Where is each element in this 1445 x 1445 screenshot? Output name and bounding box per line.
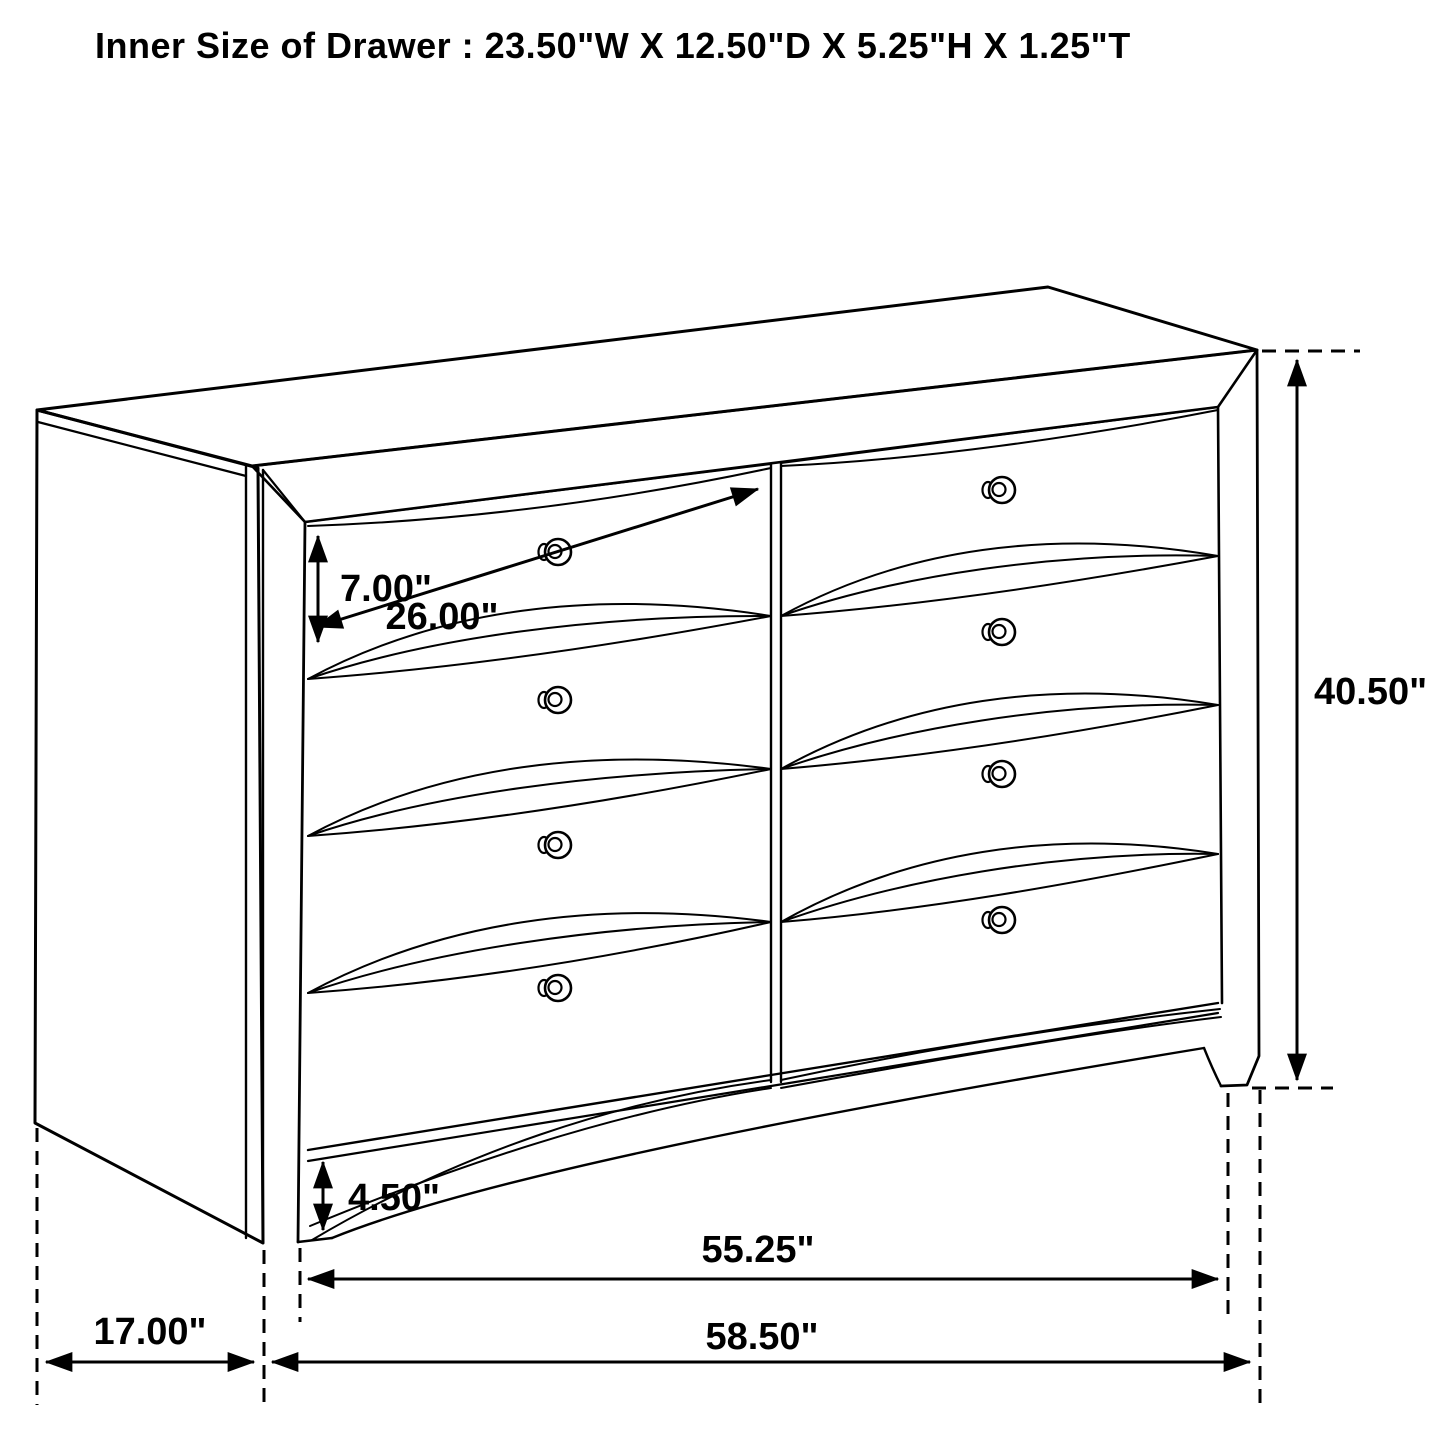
dimension-side-depth: 17.00" xyxy=(46,1311,254,1362)
drawer-knob xyxy=(539,687,572,713)
front-width-between-feet-label: 55.25" xyxy=(701,1229,814,1271)
drawer-knob xyxy=(983,761,1016,787)
dresser-top-face xyxy=(37,287,1257,522)
base-height-label: 4.50" xyxy=(348,1177,440,1219)
drawer-knob xyxy=(983,907,1016,933)
drawer-knobs xyxy=(539,477,1016,1001)
left-drawer-column xyxy=(305,464,771,993)
side-depth-label: 17.00" xyxy=(93,1311,206,1353)
dimension-overall-height: 40.50" xyxy=(1297,360,1427,1080)
overall-height-label: 40.50" xyxy=(1314,671,1427,713)
dimension-overall-width: 58.50" xyxy=(272,1316,1250,1362)
drawer-knob xyxy=(983,477,1016,503)
overall-width-label: 58.50" xyxy=(705,1316,818,1358)
diagram-page: Inner Size of Drawer : 23.50"W X 12.50"D… xyxy=(0,0,1445,1445)
dresser-front-frame xyxy=(298,350,1259,1242)
dresser-dimension-diagram: Inner Size of Drawer : 23.50"W X 12.50"D… xyxy=(0,0,1445,1445)
dresser-side-panel xyxy=(35,410,263,1243)
extension-lines xyxy=(37,351,1360,1406)
center-divider xyxy=(771,463,781,1082)
drawer-knob xyxy=(539,832,572,858)
dresser-drawing xyxy=(35,287,1259,1243)
diagram-title: Inner Size of Drawer : 23.50"W X 12.50"D… xyxy=(95,25,1131,66)
drawer-front-width-label: 26.00" xyxy=(385,596,498,638)
drawer-knob xyxy=(983,619,1016,645)
drawer-knob xyxy=(539,975,572,1001)
dimension-front-width-between-feet: 55.25" xyxy=(308,1229,1218,1279)
